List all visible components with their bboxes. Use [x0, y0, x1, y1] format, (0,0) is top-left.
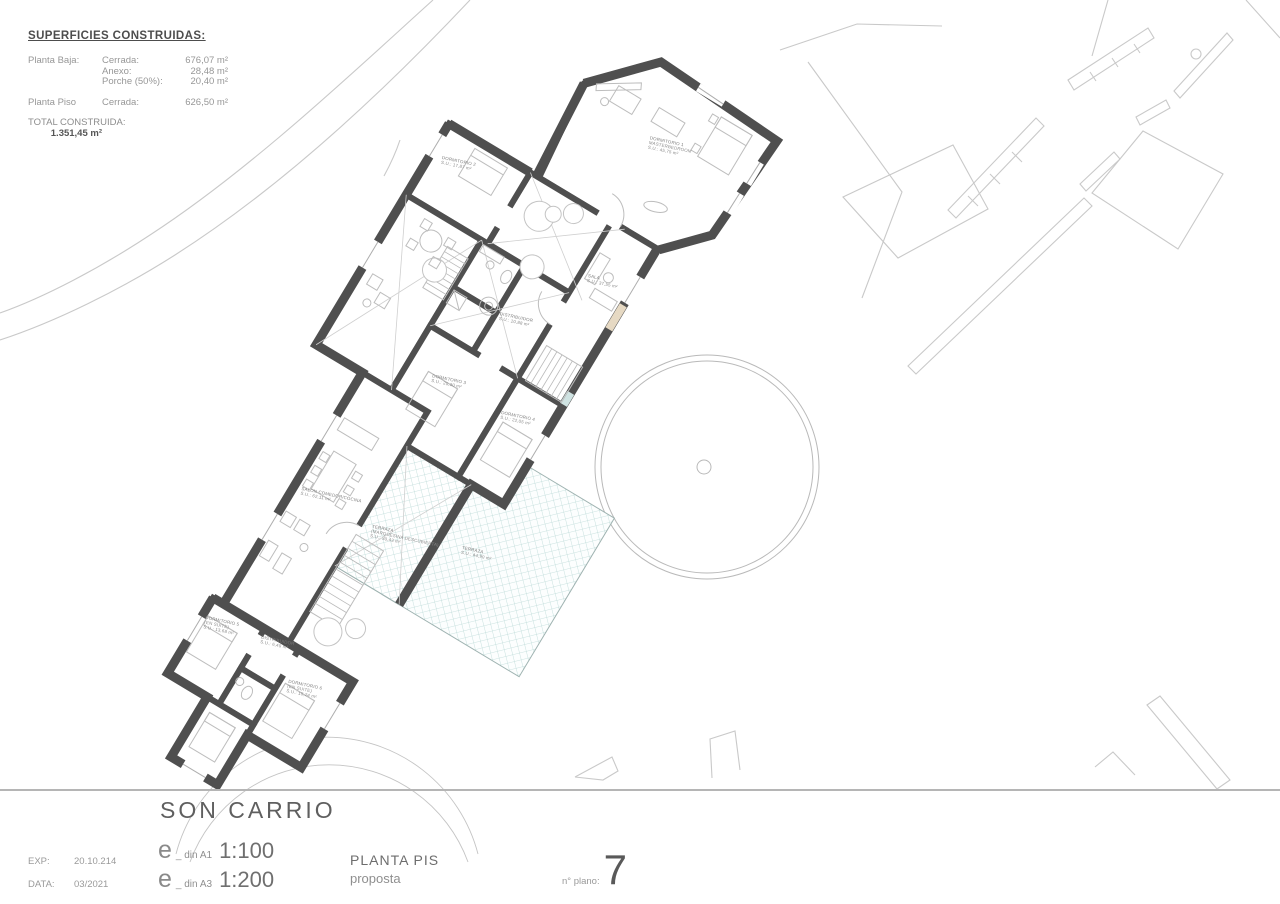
project-title: SON CARRIO	[160, 797, 336, 824]
drawing-subtitle: proposta	[350, 871, 439, 886]
drawing-name: PLANTA PIS	[350, 852, 439, 868]
superficies-row: Planta Baja: Cerrada: 676,07 m²	[28, 56, 228, 67]
superficies-row: Planta Piso Cerrada: 626,50 m²	[28, 98, 228, 109]
drawing-sheet: DORMITORIO 1MASTERBEDROOMS.U.: 45,75 m² …	[0, 0, 1280, 904]
superficies-heading: SUPERFICIES CONSTRUIDAS:	[28, 30, 228, 42]
scale-a3: e _ din A3 1:200	[158, 865, 274, 894]
plan-number-block: n° plano: 7	[562, 848, 627, 892]
exp-label: EXP:	[28, 856, 74, 867]
scale-a1: e _ din A1 1:100	[158, 836, 274, 865]
exp-value: 20.10.214	[74, 856, 116, 867]
superficies-row: Porche (50%): 20,40 m²	[28, 77, 228, 88]
superficies-total-row: TOTAL CONSTRUIDA: 1.351,45 m²	[28, 118, 228, 139]
plan-number-label: n° plano:	[562, 876, 600, 887]
superficies-panel: SUPERFICIES CONSTRUIDAS: Planta Baja: Ce…	[28, 30, 228, 139]
plan-number: 7	[604, 848, 627, 892]
data-value: 03/2021	[74, 879, 116, 890]
scale-block: e _ din A1 1:100 e _ din A3 1:200	[158, 836, 274, 894]
titleblock-divider	[0, 789, 1280, 791]
data-label: DATA:	[28, 879, 74, 890]
drawing-name-block: PLANTA PIS proposta	[350, 852, 439, 886]
round-era-circle	[595, 355, 819, 579]
exp-data-block: EXP: 20.10.214 DATA: 03/2021	[28, 856, 116, 902]
